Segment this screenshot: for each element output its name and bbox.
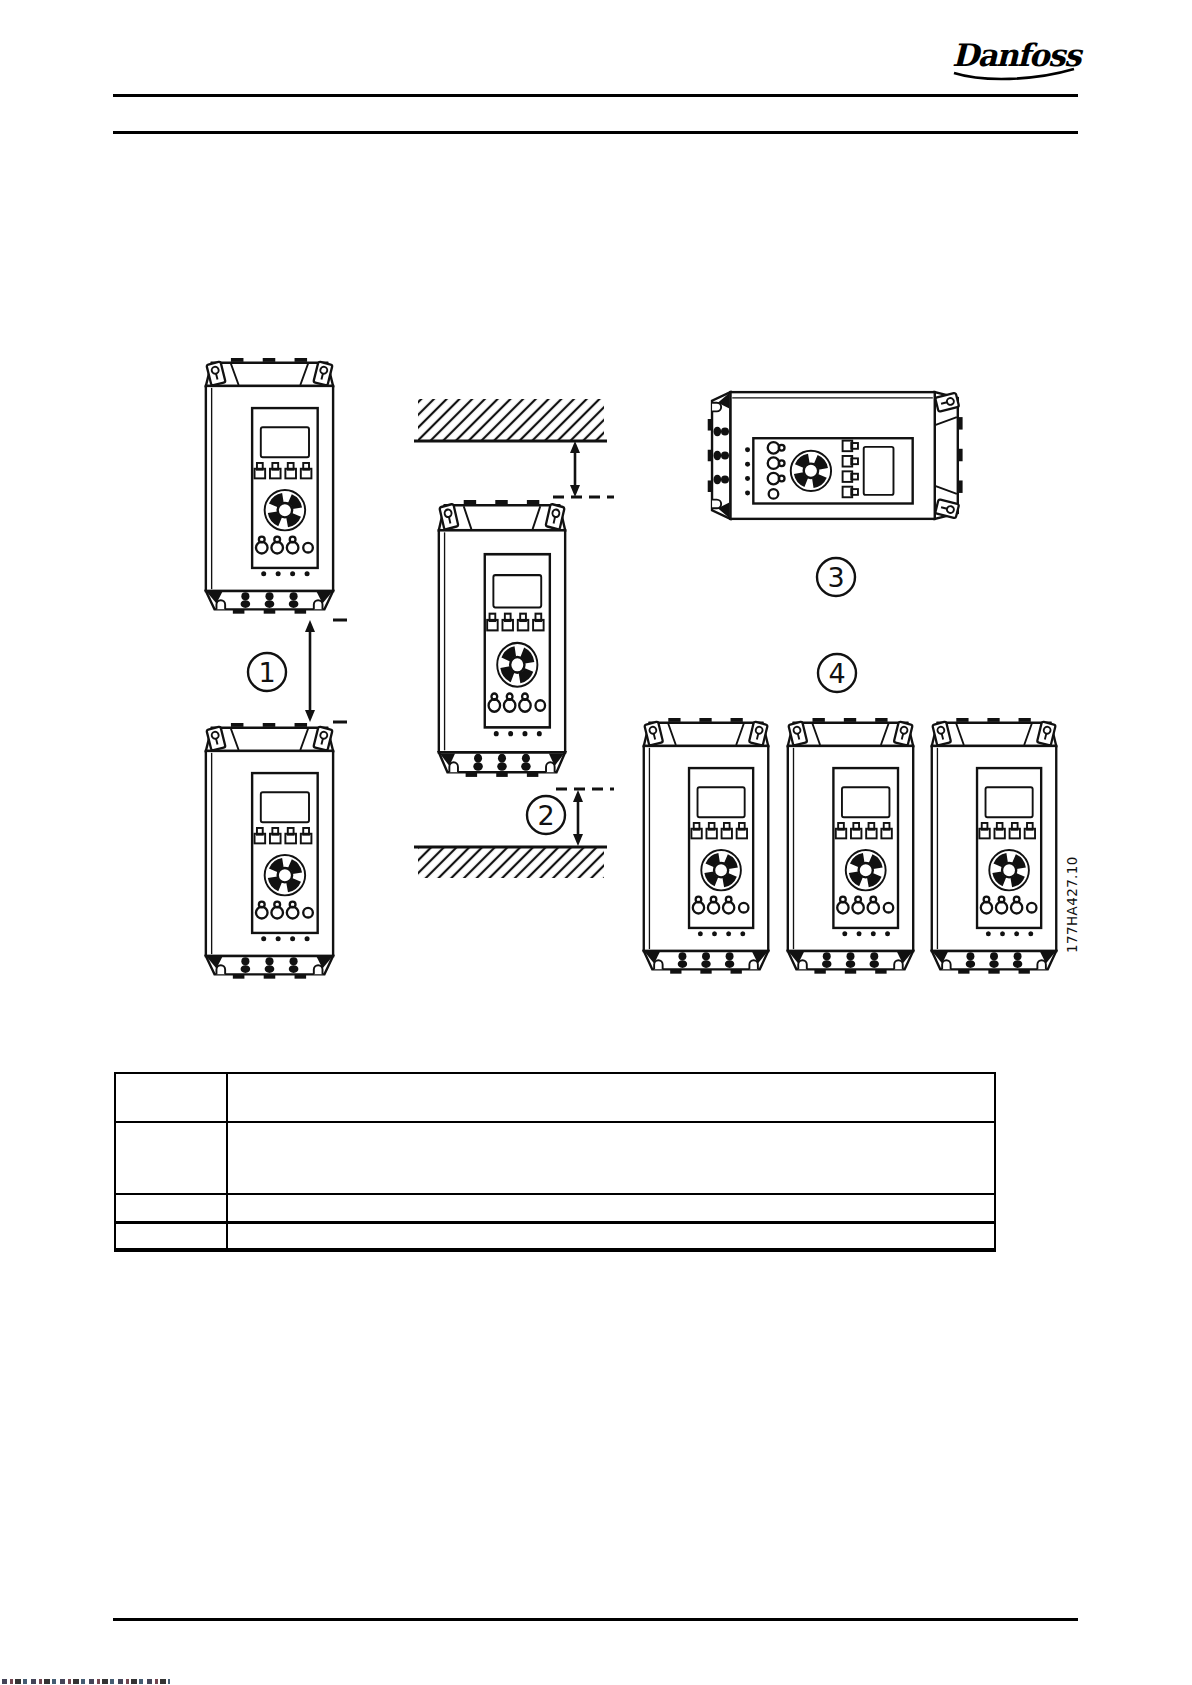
table-cell-description [228,1074,994,1121]
floor-hatch [414,847,607,878]
callout-1-label: 1 [258,657,275,688]
callout-3: 3 [817,558,855,596]
footer-rule [113,1618,1078,1621]
table-row [116,1074,994,1123]
clearance-arrow-ceiling [553,441,614,497]
document-page: Danfoss [0,0,1192,1685]
table-row [116,1195,994,1224]
callout-4: 4 [818,654,856,692]
callout-1: 1 [248,653,286,691]
drive-unit-top-left [206,358,333,614]
table-cell-item [116,1123,228,1193]
table-cell-description [228,1195,994,1221]
table-cell-item [116,1224,228,1248]
drive-unit-row-left [644,718,768,974]
table-row [116,1123,994,1195]
drive-unit-horizontal [708,392,963,519]
mounting-clearance-figure: 1 2 3 [0,0,1192,1685]
extension-dash-between-units [333,620,347,722]
drive-unit-middle [439,500,565,777]
drive-unit-row-right [932,718,1056,974]
clearance-spec-table [114,1072,996,1252]
table-cell-description [228,1224,994,1248]
page-edge-print-artifact [2,1679,170,1684]
table-cell-description [228,1123,994,1193]
callout-3-label: 3 [827,562,844,593]
callout-2-label: 2 [537,800,554,831]
callout-2: 2 [527,796,565,834]
drive-unit-bottom-left [206,723,333,979]
callout-4-label: 4 [828,658,845,689]
ceiling-hatch [414,399,607,441]
table-row [116,1224,994,1248]
table-cell-item [116,1195,228,1221]
drive-unit-row-center [788,718,913,974]
table-cell-item [116,1074,228,1121]
clearance-arrow-between-units [305,620,347,722]
drawing-number-label: 177HA427.10 [1064,856,1080,953]
